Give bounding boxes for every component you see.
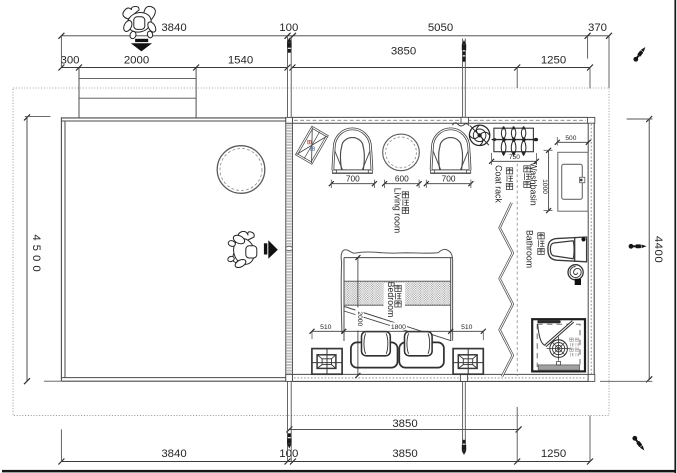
svg-text:700: 700 [442, 174, 456, 184]
svg-text:2000: 2000 [356, 311, 363, 326]
svg-text:3840: 3840 [161, 448, 186, 460]
svg-text:3840: 3840 [161, 22, 186, 34]
svg-text:1250: 1250 [541, 448, 566, 460]
svg-text:2000: 2000 [124, 55, 149, 67]
svg-text:700: 700 [346, 174, 360, 184]
svg-text:1800: 1800 [391, 324, 406, 331]
svg-text:4500: 4500 [30, 234, 42, 275]
svg-text:300: 300 [60, 55, 79, 67]
svg-text:Washbasin: Washbasin [529, 162, 539, 205]
svg-text:5050: 5050 [428, 22, 453, 34]
svg-text:Bathroom: Bathroom [525, 230, 535, 268]
svg-text:4400: 4400 [652, 236, 664, 263]
svg-text:510: 510 [461, 324, 473, 331]
svg-text:750: 750 [509, 154, 520, 161]
svg-text:100: 100 [279, 22, 298, 34]
svg-text:370: 370 [588, 22, 607, 34]
svg-text:100: 100 [279, 448, 298, 460]
svg-text:3850: 3850 [392, 448, 417, 460]
svg-text:Living room: Living room [393, 188, 403, 233]
svg-text:3850: 3850 [391, 46, 416, 58]
svg-text:1540: 1540 [228, 55, 253, 67]
svg-text:Coat rack: Coat rack [494, 165, 504, 203]
svg-text:1250: 1250 [541, 55, 566, 67]
svg-text:510: 510 [320, 324, 332, 331]
svg-text:Bedroom: Bedroom [386, 282, 396, 318]
svg-text:600: 600 [395, 174, 409, 184]
svg-text:3850: 3850 [392, 418, 417, 430]
svg-text:500: 500 [565, 135, 576, 142]
svg-text:1000: 1000 [541, 179, 548, 194]
